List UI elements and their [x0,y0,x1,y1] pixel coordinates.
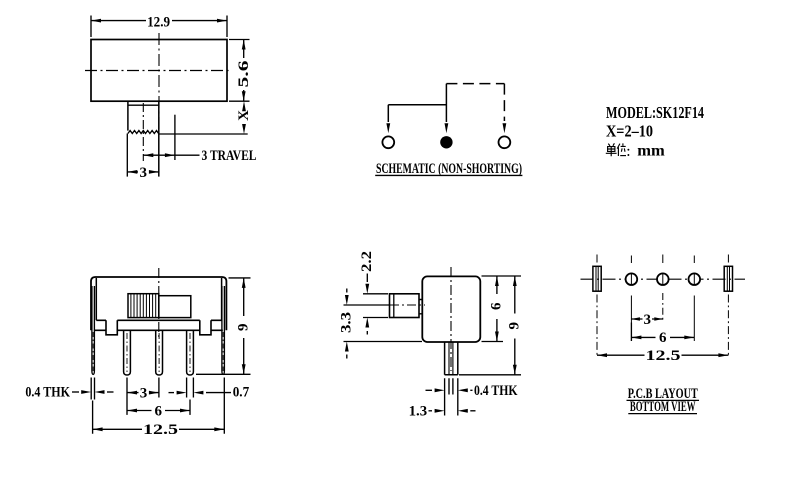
svg-text:X=2–10: X=2–10 [606,121,653,140]
svg-text:3: 3 [140,165,148,181]
svg-text:2.2: 2.2 [359,251,375,272]
svg-text:0.4 THK: 0.4 THK [474,383,518,399]
svg-text:0.7: 0.7 [233,385,250,401]
svg-text:3 TRAVEL: 3 TRAVEL [202,148,257,164]
svg-text:mm: mm [637,143,665,160]
svg-text:12.5: 12.5 [143,422,178,438]
svg-text:5.6: 5.6 [236,60,252,88]
svg-text:9: 9 [235,324,251,332]
svg-text:6: 6 [155,403,163,419]
svg-text:3: 3 [140,385,148,401]
svg-text:1.3: 1.3 [409,403,428,419]
svg-text:MODEL:SK12F14: MODEL:SK12F14 [606,103,704,122]
svg-text:6: 6 [659,330,667,346]
svg-text:6: 6 [489,302,505,310]
svg-text:3.3: 3.3 [339,312,355,333]
svg-text:12.5: 12.5 [646,348,681,364]
svg-text:SCHEMATIC (NON-SHORTING): SCHEMATIC (NON-SHORTING) [376,161,522,177]
svg-text:3: 3 [644,312,652,328]
svg-text:0.4 THK: 0.4 THK [25,385,70,401]
svg-text:BOTTOM VIEW: BOTTOM VIEW [630,399,696,415]
svg-text:9: 9 [507,322,523,330]
svg-text:12.9: 12.9 [147,14,170,30]
svg-text:X: X [236,110,252,121]
